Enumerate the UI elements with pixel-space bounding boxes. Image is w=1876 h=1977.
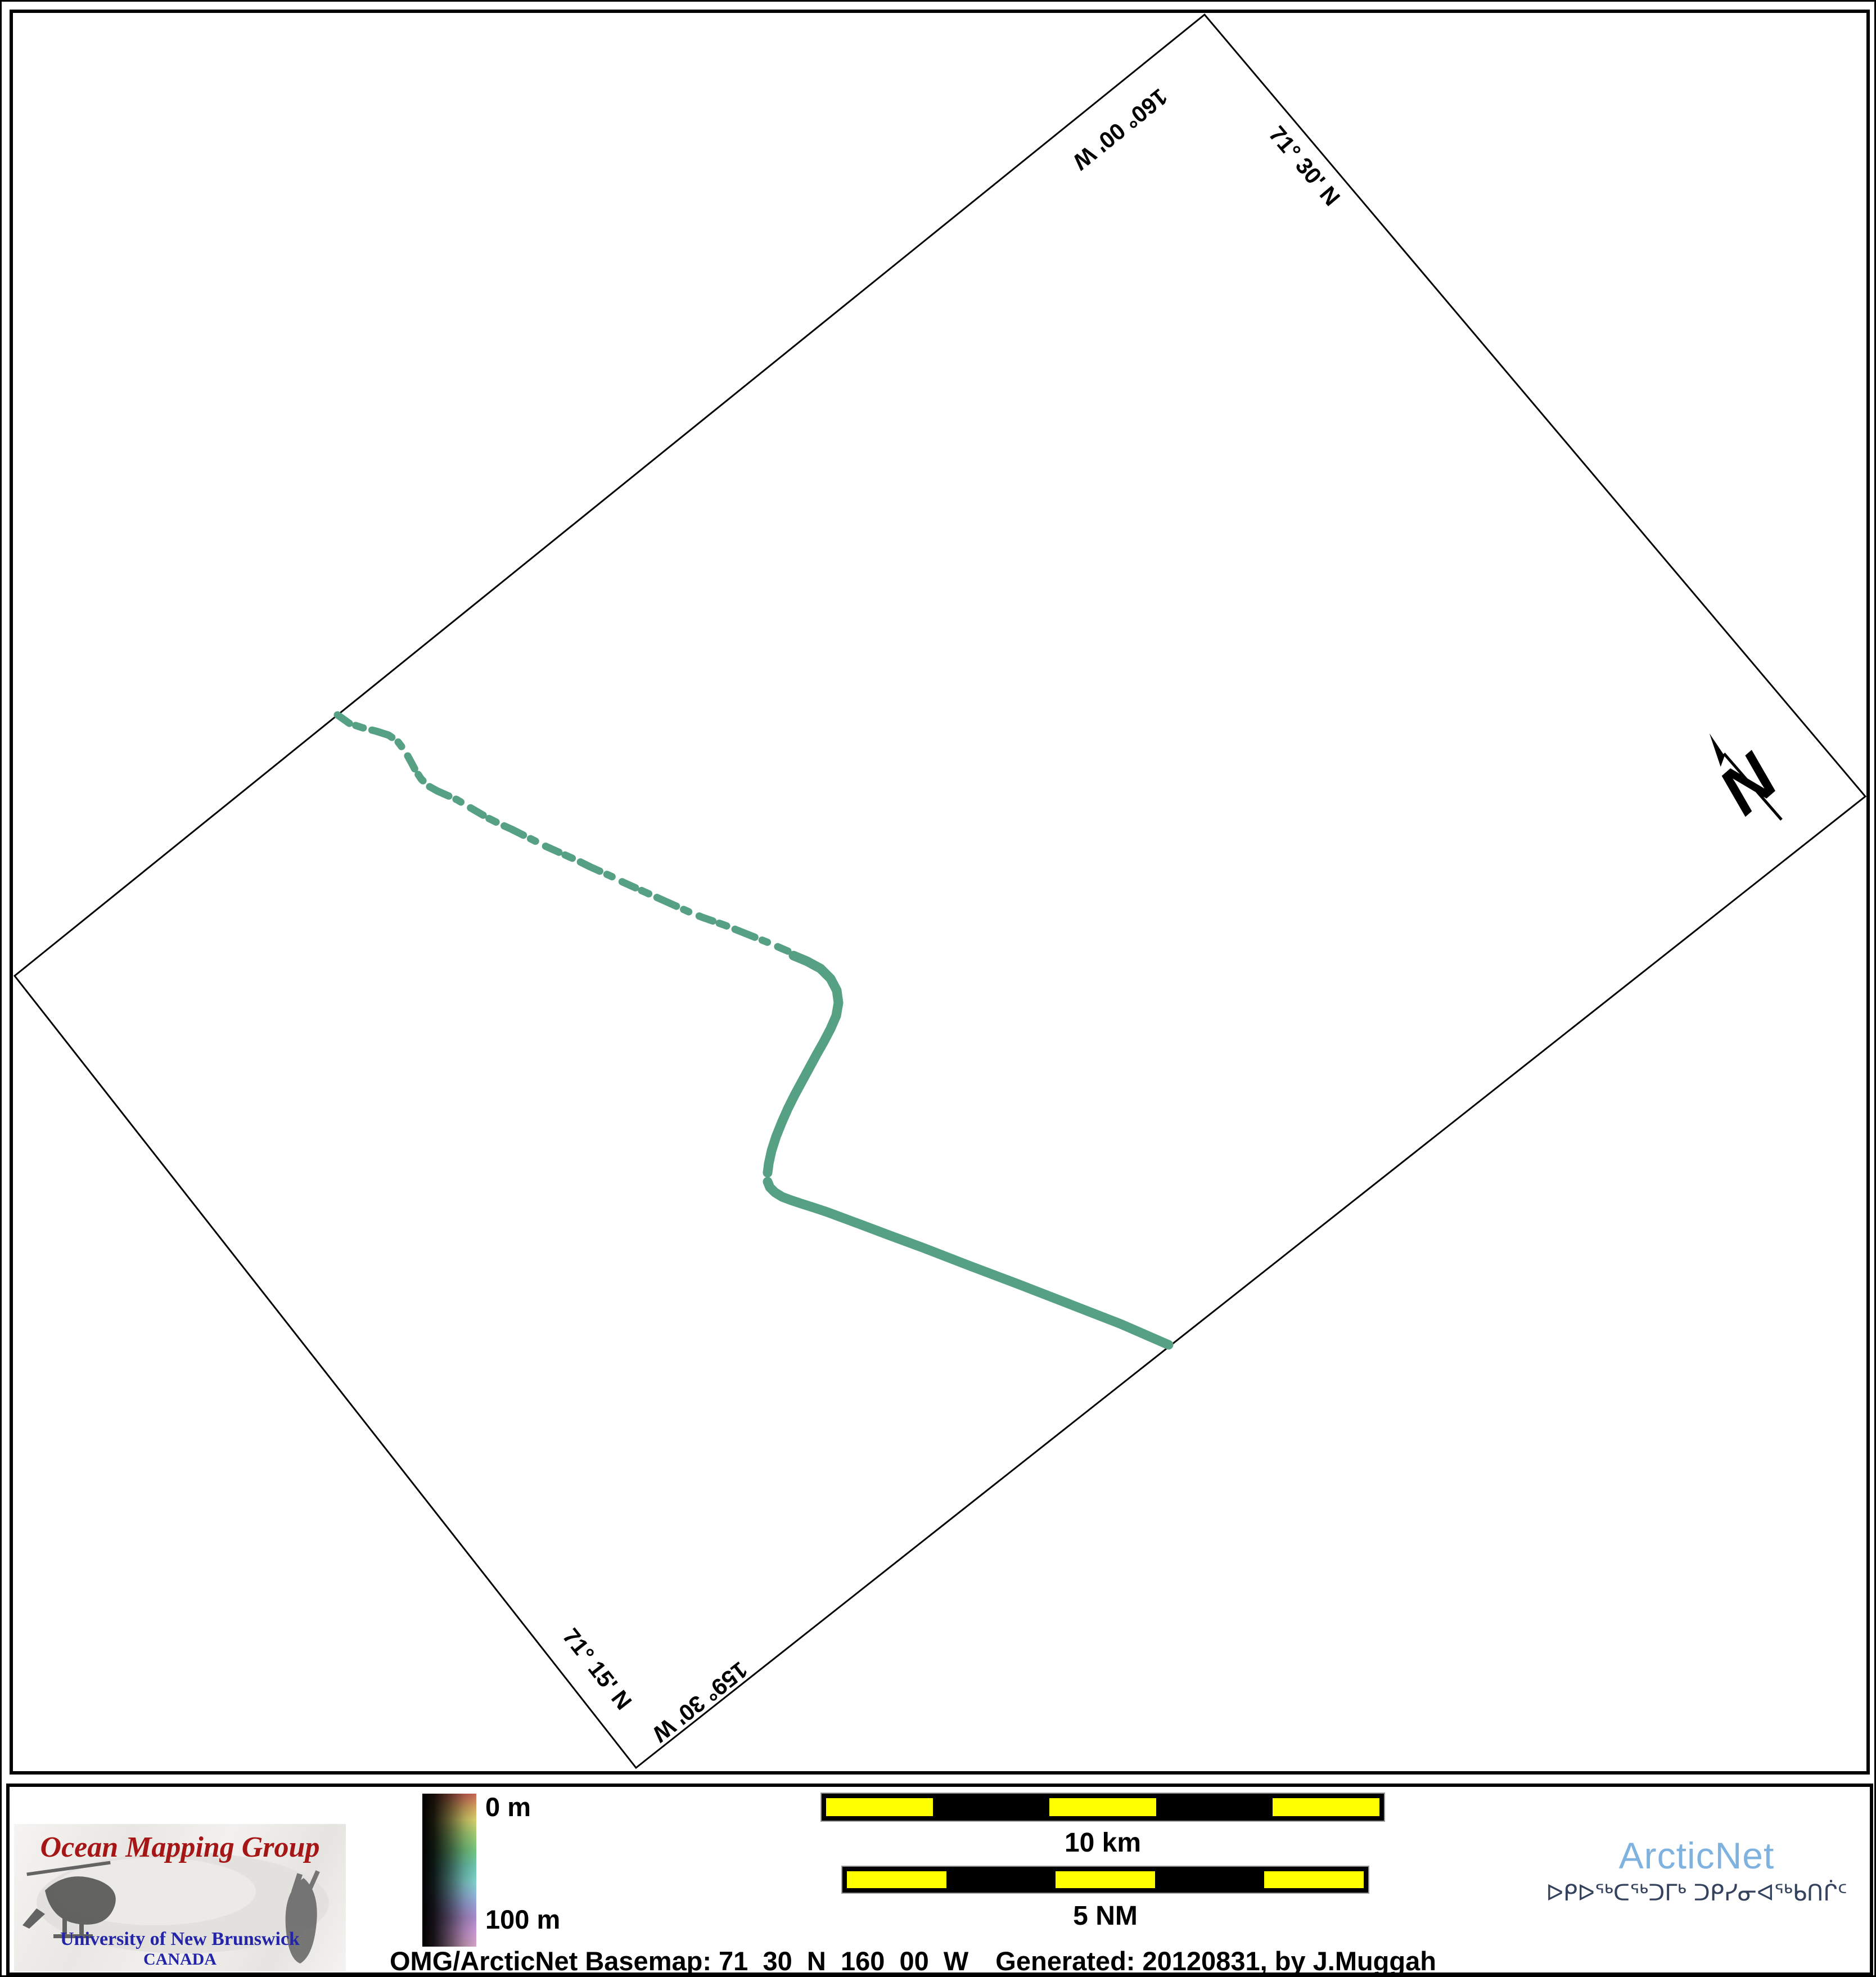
graticule-label: 71° 15' N	[558, 1623, 637, 1714]
survey-track-solid-1	[768, 956, 838, 1173]
survey-track-dashed	[337, 715, 788, 951]
page: Ocean Mapping Group University of New Br…	[0, 0, 1876, 1977]
north-arrow: N	[1688, 719, 1799, 837]
survey-track-solid-2	[768, 1182, 1169, 1345]
graticule-labels: 160° 00' W71° 30' N71° 15' N159° 30' W	[558, 84, 1345, 1748]
map-canvas: 160° 00' W71° 30' N71° 15' N159° 30' W N	[2, 2, 1876, 1977]
graticule-label: 160° 00' W	[1068, 84, 1172, 175]
graticule-label: 159° 30' W	[647, 1656, 752, 1747]
map-neatline	[15, 15, 1865, 1768]
